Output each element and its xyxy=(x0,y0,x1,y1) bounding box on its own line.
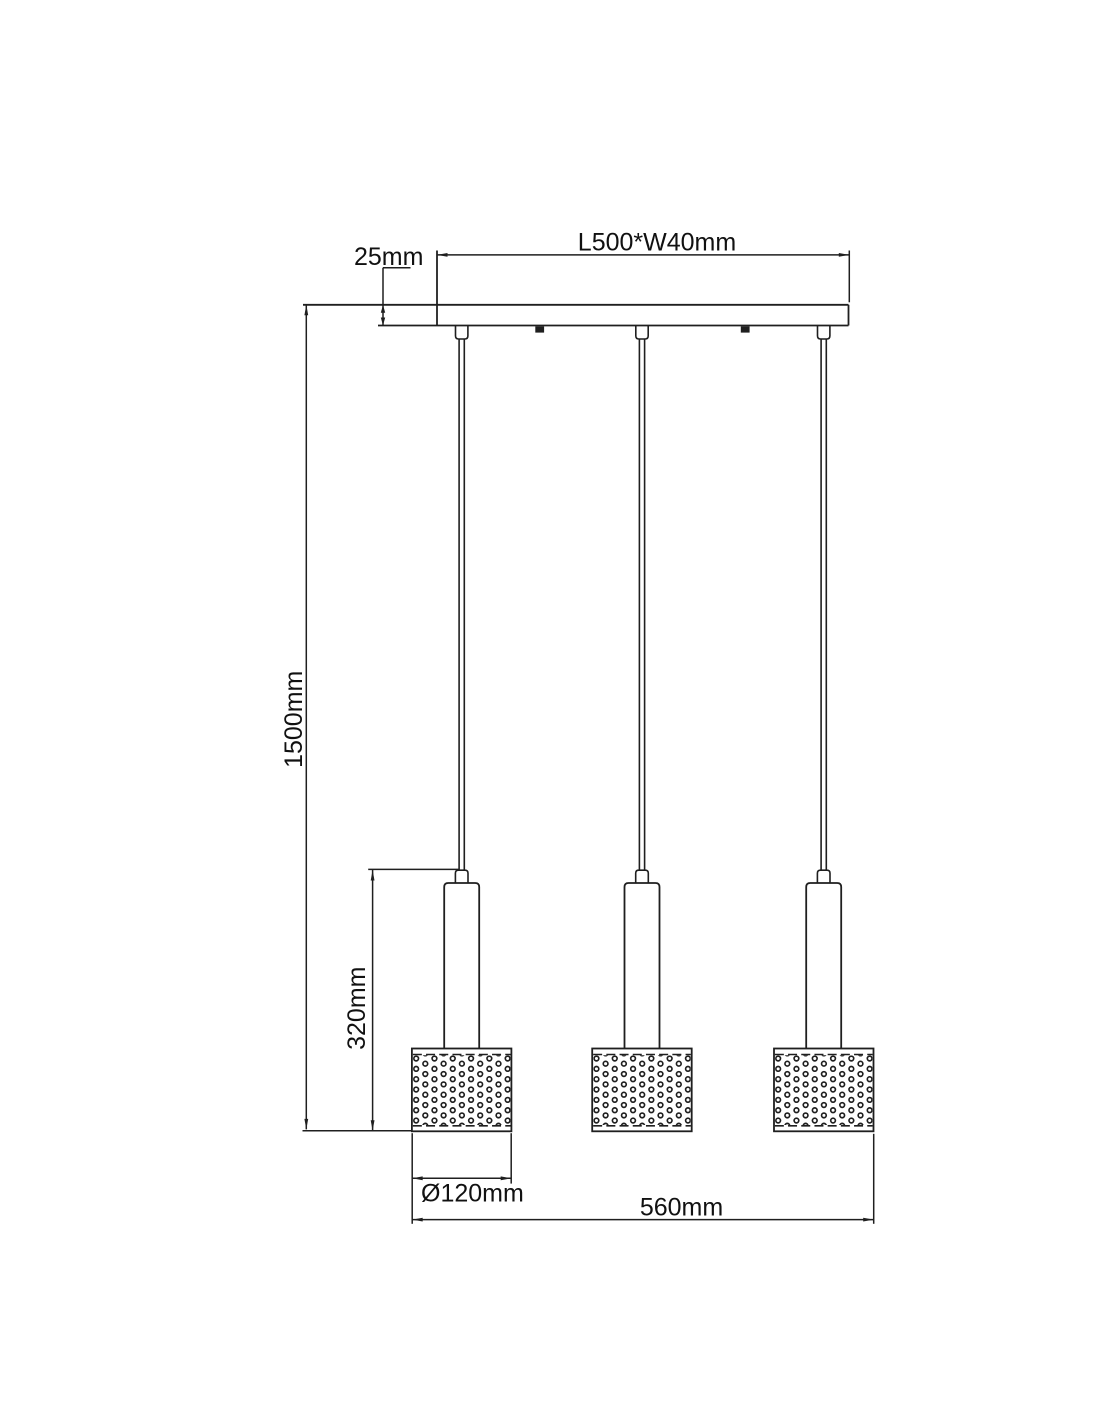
svg-text:Ø120mm: Ø120mm xyxy=(421,1179,524,1207)
svg-text:1500mm: 1500mm xyxy=(280,671,308,768)
svg-text:560mm: 560mm xyxy=(640,1194,723,1222)
svg-text:L500*W40mm: L500*W40mm xyxy=(578,228,736,256)
svg-text:320mm: 320mm xyxy=(343,967,371,1050)
svg-text:25mm: 25mm xyxy=(354,243,423,271)
